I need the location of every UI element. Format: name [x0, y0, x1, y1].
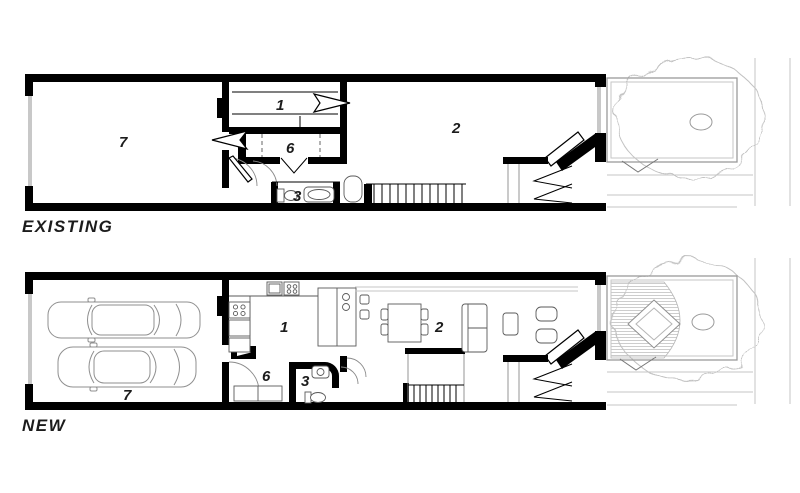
- new-room-2-label: 2: [434, 319, 444, 336]
- existing-room-7-label: 7: [119, 134, 128, 151]
- existing-plan-title: EXISTING: [22, 217, 113, 236]
- refrigerator: [229, 338, 250, 352]
- existing-rear-yard: [607, 58, 790, 207]
- front-window: [597, 285, 601, 331]
- existing-stairs: [366, 184, 466, 203]
- car-hatchback: [58, 343, 196, 391]
- double-door: [281, 158, 307, 173]
- dining-chair: [381, 309, 388, 320]
- new-room-3-label: 3: [301, 373, 310, 390]
- new-garage-cars: [48, 298, 200, 391]
- floor-plan-sheet: 7 1 6 2 3 EXISTING: [0, 0, 800, 493]
- existing-room-1-label: 1: [276, 97, 284, 114]
- dining-chair: [421, 309, 428, 320]
- new-plan-title: NEW: [22, 416, 67, 435]
- existing-room-6-label: 6: [286, 140, 295, 157]
- new-rear-yard: [607, 258, 790, 405]
- garage-door-opening: [28, 96, 32, 186]
- dining-chair: [421, 324, 428, 335]
- range: [229, 302, 250, 318]
- bar-stool: [360, 310, 369, 319]
- new-entry-porch: [508, 362, 572, 402]
- new-room-6-label: 6: [262, 368, 271, 385]
- toilet-bowl: [311, 393, 326, 403]
- existing-room-2-label: 2: [451, 120, 461, 137]
- new-mudroom: [229, 362, 282, 401]
- deck-table: [690, 114, 712, 130]
- deck-inner-edge: [611, 82, 733, 158]
- bar-stool: [360, 295, 369, 304]
- new-plan: 7 1 6 3 2 NEW: [22, 258, 790, 435]
- lounge-chair: [536, 307, 557, 321]
- existing-plan: 7 1 6 2 3 EXISTING: [22, 58, 790, 236]
- entry-steps-chevron: [534, 364, 572, 386]
- floor-plans-drawing: 7 1 6 2 3 EXISTING: [0, 0, 800, 493]
- new-room-1-label: 1: [280, 319, 288, 336]
- front-window: [597, 87, 601, 133]
- new-room-7-label: 7: [123, 387, 132, 404]
- island-sink: [343, 294, 350, 301]
- dining-chair: [381, 324, 388, 335]
- base-cabinet: [229, 320, 250, 336]
- existing-property-lines: [607, 58, 790, 207]
- garage-door-opening: [28, 294, 32, 384]
- existing-room-1-bed: [232, 92, 350, 127]
- cooktop: [284, 282, 299, 295]
- new-kitchen: [229, 282, 369, 352]
- shower-stall: [344, 176, 362, 202]
- lounge-chair: [536, 329, 557, 343]
- new-living-dining: [355, 287, 578, 352]
- deck-table: [692, 314, 714, 330]
- new-stairs: [408, 354, 464, 402]
- car-sedan: [48, 298, 200, 342]
- armchair: [503, 313, 518, 335]
- existing-bathroom-fixtures: [272, 176, 362, 202]
- dining-table: [388, 304, 421, 342]
- entry-steps-chevron: [534, 166, 572, 188]
- existing-room-3-label: 3: [293, 188, 302, 205]
- tree-outline: [616, 58, 764, 178]
- deck-gate: [620, 357, 656, 370]
- existing-entry-porch: [508, 164, 572, 203]
- toilet-tank: [277, 189, 284, 202]
